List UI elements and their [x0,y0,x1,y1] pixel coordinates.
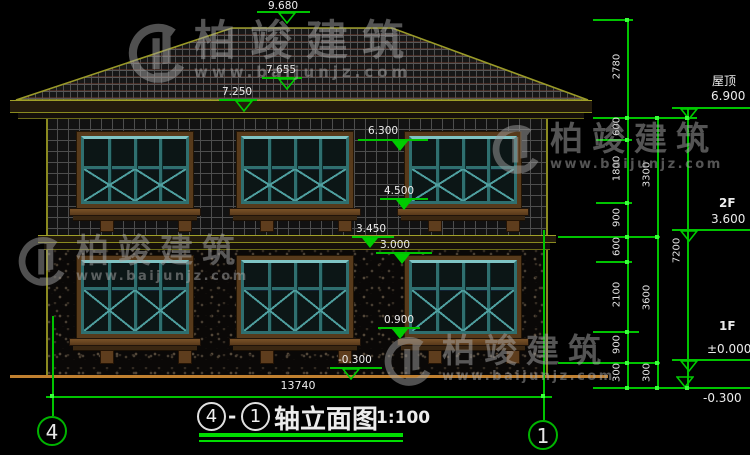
window-sill [397,338,529,346]
dim-line-width [46,396,552,398]
dim-7200: 7200 [672,221,683,281]
elev-belt: 3.450 [356,223,386,235]
dim-300a: 300 [612,343,623,403]
sill-corbel [506,350,520,364]
window-sill [397,208,529,216]
window-1f-middle [237,256,353,338]
window-sill [69,338,201,346]
axis-line-4 [52,316,54,416]
roof-level-value: 6.900 [711,89,745,103]
eave-fascia-shadow [18,113,584,119]
title-underline-thin [199,440,403,442]
window-1f-right [405,256,521,338]
window-sill [69,208,201,216]
title-dash: - [228,404,236,428]
window-1f-left [77,256,193,338]
axis-line-1 [543,230,545,420]
window-2f-left [77,132,193,208]
title-axis-start: 4 [197,402,226,431]
window-sill [229,338,361,346]
elev-2f-window-head: 6.300 [368,125,398,137]
drawing-scale: 1:100 [376,408,430,428]
sill-corbel [260,350,274,364]
dim-width: 13740 [270,379,326,392]
window-glazing [409,260,517,334]
sill-corbel [428,350,442,364]
eave-fascia [10,100,592,113]
window-sill [229,208,361,216]
sill-corbel [338,220,352,232]
elev-1f-window-head: 3.000 [380,239,410,251]
drawing-title: 轴立面图 [274,399,378,436]
window-glazing [81,260,189,334]
elev-grade-mid: -0.300 [338,354,372,366]
title-axis-end: 1 [241,402,270,431]
axis-bubble-1: 1 [528,420,558,450]
dim-2780: 2780 [612,37,623,97]
dim-line-col3 [687,108,689,389]
window-2f-middle [237,132,353,208]
axis-bubble-4: 4 [37,416,67,446]
window-glazing [409,136,517,204]
floor2-value: 3.600 [711,212,745,226]
sill-corbel [100,350,114,364]
roof-level-label: 屋顶 [712,72,736,89]
elev-2f-window-sill: 4.500 [384,185,414,197]
belt-course [38,235,556,243]
sill-corbel [100,220,114,232]
elev-ridge: 9.680 [268,0,298,12]
title-underline-thick [199,433,403,437]
dim-300b: 300 [642,343,653,403]
sill-corbel [178,220,192,232]
elev-1f-window-sill: 0.900 [384,314,414,326]
elevation-drawing: 9.680 7.655 7.250 6.300 4.500 3.450 3.00… [0,0,750,455]
window-glazing [81,136,189,204]
dim-3300: 3300 [642,145,653,205]
sill-corbel [428,220,442,232]
floor1-label: 1F [719,319,736,333]
ground-line [10,375,608,378]
window-glazing [241,260,349,334]
floor2-label: 2F [719,196,736,210]
grade-right-value: -0.300 [703,391,742,405]
floor1-value: ±0.000 [707,342,750,356]
elev-slope-lower: 7.250 [222,86,252,98]
belt-course-lower [44,243,550,250]
dim-line-col2 [657,116,659,389]
sill-corbel [506,220,520,232]
window-2f-right [405,132,521,208]
elev-slope-upper: 7.655 [266,64,296,76]
sill-corbel [260,220,274,232]
window-glazing [241,136,349,204]
dim-3600: 3600 [642,268,653,328]
sill-corbel [178,350,192,364]
